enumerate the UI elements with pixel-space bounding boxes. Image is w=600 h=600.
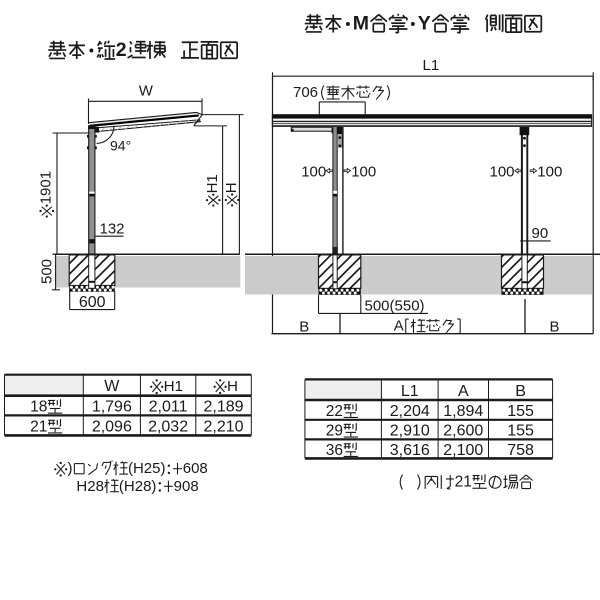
svg-text:H28: H28	[76, 478, 104, 495]
svg-text:758: 758	[507, 442, 534, 459]
svg-text:500(550): 500(550)	[365, 298, 425, 315]
svg-text:): )	[68, 460, 73, 477]
svg-text:21: 21	[455, 474, 472, 491]
svg-text:(H25): (H25)	[128, 460, 166, 477]
svg-text:500: 500	[39, 259, 56, 284]
svg-text:1,796: 1,796	[92, 399, 132, 416]
svg-text:2,910: 2,910	[390, 423, 430, 440]
svg-text:H: H	[223, 182, 240, 193]
svg-text:18: 18	[30, 399, 47, 416]
svg-text:H1: H1	[164, 378, 183, 395]
svg-text:1,894: 1,894	[443, 403, 483, 420]
svg-text:608: 608	[183, 460, 208, 477]
svg-text:2,011: 2,011	[149, 399, 188, 416]
svg-text:21: 21	[30, 418, 47, 435]
svg-text:W: W	[104, 378, 120, 395]
svg-text:W: W	[139, 83, 154, 100]
svg-text:2,210: 2,210	[204, 418, 244, 435]
svg-text:908: 908	[174, 478, 199, 495]
svg-text:2,189: 2,189	[204, 399, 244, 416]
svg-text:A: A	[394, 318, 404, 335]
svg-text:706: 706	[293, 84, 318, 101]
svg-text:(H28): (H28)	[119, 478, 157, 495]
svg-text:L1: L1	[401, 383, 419, 400]
svg-text:2,100: 2,100	[443, 442, 483, 459]
svg-text:100: 100	[490, 163, 515, 180]
svg-text:B: B	[515, 383, 526, 400]
svg-text:°: °	[126, 138, 132, 154]
svg-text:2,096: 2,096	[92, 418, 132, 435]
svg-text:1901: 1901	[38, 171, 55, 204]
svg-text:B: B	[549, 318, 559, 335]
svg-text:2: 2	[116, 39, 127, 61]
svg-text:90: 90	[532, 225, 549, 242]
svg-text:600: 600	[79, 294, 106, 311]
svg-text:H1: H1	[204, 174, 221, 193]
svg-text:22: 22	[326, 403, 343, 420]
svg-text:3,616: 3,616	[390, 442, 430, 459]
svg-text:2,600: 2,600	[443, 423, 483, 440]
svg-text:100: 100	[301, 163, 326, 180]
svg-text:36: 36	[326, 442, 343, 459]
svg-text:H: H	[227, 378, 238, 395]
svg-text:100: 100	[351, 163, 376, 180]
svg-text:29: 29	[326, 423, 343, 440]
svg-text:L1: L1	[423, 57, 440, 74]
svg-text:132: 132	[100, 221, 125, 238]
svg-text:2,032: 2,032	[148, 418, 188, 435]
svg-text:B: B	[299, 318, 309, 335]
svg-text:155: 155	[507, 403, 534, 420]
svg-text:155: 155	[507, 423, 534, 440]
svg-text:M: M	[353, 12, 369, 34]
svg-text:Y: Y	[418, 12, 431, 34]
svg-text:100: 100	[537, 163, 562, 180]
svg-text:2,204: 2,204	[390, 403, 430, 420]
svg-text:A: A	[458, 383, 469, 400]
svg-text:94: 94	[110, 138, 126, 154]
